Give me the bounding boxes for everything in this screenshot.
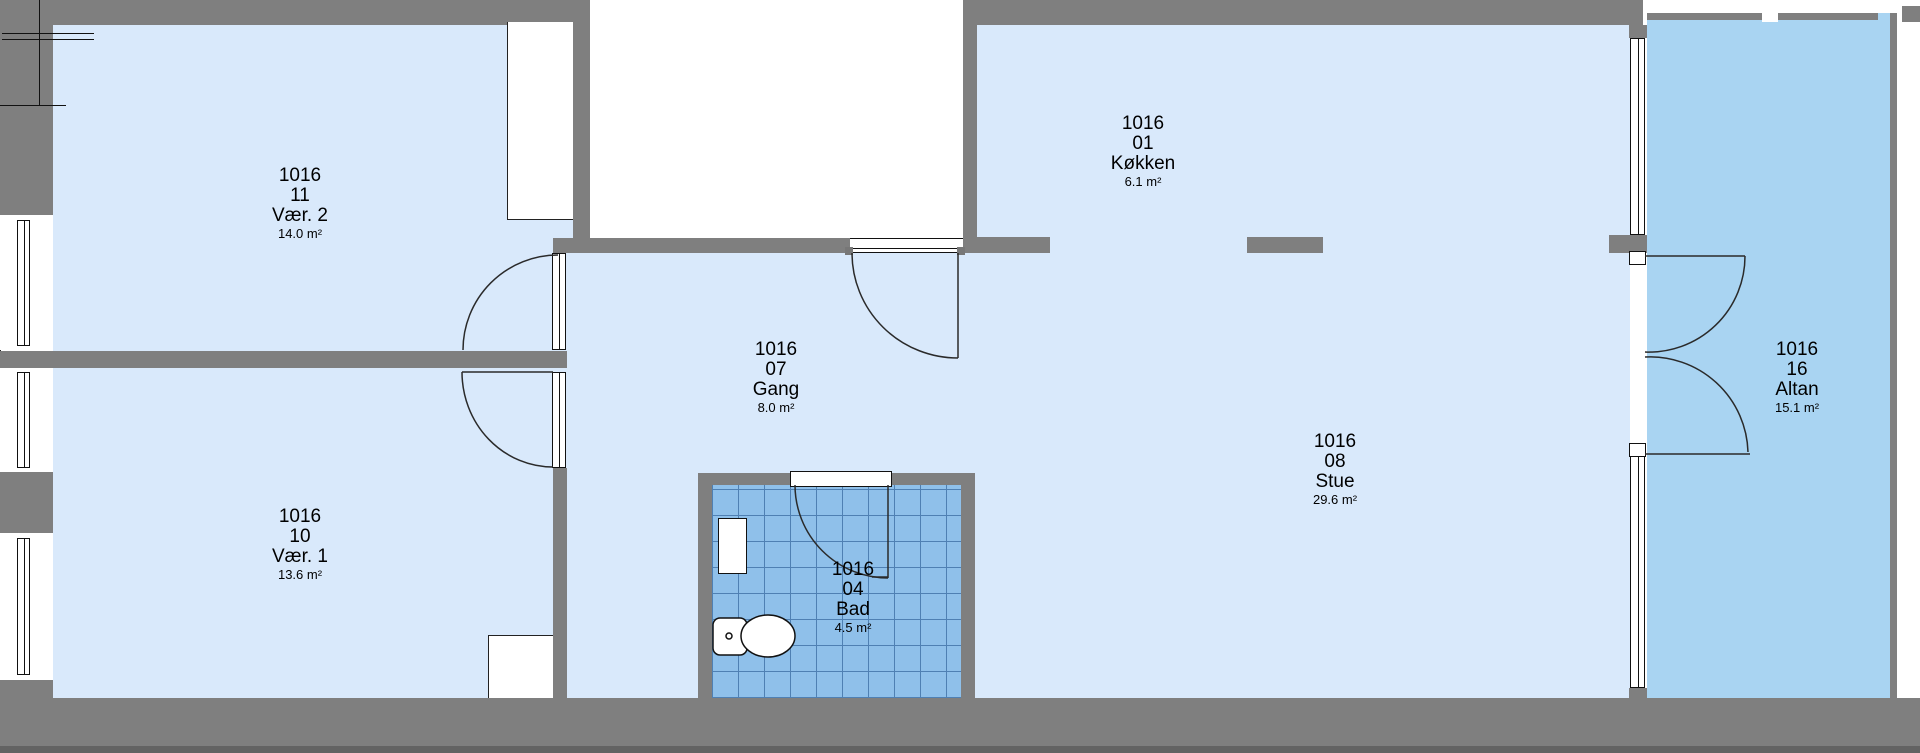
room-area: 15.1 m² <box>1775 400 1819 416</box>
room-area: 8.0 m² <box>753 400 799 416</box>
room-area: 13.6 m² <box>272 567 328 583</box>
room-label-bad: 1016 04 Bad 4.5 m² <box>832 560 874 636</box>
room-id: 1016 <box>272 166 328 186</box>
wall-stue-right-top-stub <box>1629 25 1647 38</box>
balcony-parapet-right <box>1890 13 1897 698</box>
closet-bedroom1 <box>488 635 553 698</box>
room-id: 1016 <box>1775 340 1819 360</box>
room-label-altan: 1016 16 Altan 15.1 m² <box>1775 340 1819 416</box>
room-number: 01 <box>1111 134 1175 154</box>
room-name: Vær. 2 <box>272 206 328 226</box>
room-name: Altan <box>1775 380 1819 400</box>
room-area: 4.5 m² <box>832 620 874 636</box>
floor-balcony-altan <box>1647 13 1896 698</box>
wall-bottom-band <box>0 698 1920 748</box>
window-stue-lower <box>1630 455 1645 688</box>
wall-kitchen-left <box>963 0 977 237</box>
room-id: 1016 <box>272 507 328 527</box>
wall-bedroom1-right <box>553 468 567 698</box>
room-label-gang: 1016 07 Gang 8.0 m² <box>753 340 799 416</box>
wall-bath-top-left <box>698 473 792 485</box>
bathroom-sink <box>718 518 747 574</box>
room-area: 6.1 m² <box>1111 174 1175 190</box>
wall-kitchen-left-cap <box>963 237 1050 253</box>
room-number: 11 <box>272 186 328 206</box>
balcony-parapet-top-notch <box>1762 11 1778 22</box>
balcony-door-jamb-top <box>1629 251 1646 265</box>
room-label-koekken: 1016 01 Køkken 6.1 m² <box>1111 114 1175 190</box>
room-number: 10 <box>272 527 328 547</box>
wall-bath-left <box>698 473 712 698</box>
room-name: Bad <box>832 600 874 620</box>
room-number: 08 <box>1313 452 1357 472</box>
wall-divider-bedrooms <box>0 351 567 368</box>
balcony-door-jamb-bottom <box>1629 443 1646 457</box>
room-label-vaer1: 1016 10 Vær. 1 13.6 m² <box>272 507 328 583</box>
door-frame-bedroom1 <box>552 372 566 468</box>
entry-door-threshold <box>850 238 963 253</box>
wall-bath-right <box>961 473 975 698</box>
closet-bedroom2 <box>507 22 573 220</box>
room-id: 1016 <box>1313 432 1357 452</box>
room-name: Stue <box>1313 472 1357 492</box>
wall-top-right <box>963 0 1643 25</box>
entry-door-jamb-left <box>845 247 853 255</box>
room-area: 14.0 m² <box>272 226 328 242</box>
floor-plan: 1016 11 Vær. 2 14.0 m² 1016 10 Vær. 1 13… <box>0 0 1920 753</box>
void-common-area <box>590 0 963 253</box>
window-stue-upper <box>1630 38 1645 235</box>
door-frame-bedroom2 <box>552 253 566 350</box>
entry-door-jamb-right <box>957 247 965 255</box>
room-name: Vær. 1 <box>272 547 328 567</box>
room-id: 1016 <box>1111 114 1175 134</box>
room-id: 1016 <box>832 560 874 580</box>
room-number: 04 <box>832 580 874 600</box>
window-bedroom1-upper <box>17 372 30 468</box>
neighbor-wall-corner <box>1902 6 1920 22</box>
room-name: Gang <box>753 380 799 400</box>
wall-left-mid-pier <box>0 472 53 533</box>
wall-bedroom2-right <box>573 0 590 240</box>
door-frame-bathroom <box>790 471 892 487</box>
room-area: 29.6 m² <box>1313 492 1357 508</box>
wall-kitchen-right-cap <box>1247 237 1323 253</box>
room-label-vaer2: 1016 11 Vær. 2 14.0 m² <box>272 166 328 242</box>
room-name: Køkken <box>1111 154 1175 174</box>
window-bedroom1-lower <box>17 538 30 675</box>
room-number: 16 <box>1775 360 1819 380</box>
room-id: 1016 <box>753 340 799 360</box>
wall-top-left <box>0 0 590 25</box>
room-number: 07 <box>753 360 799 380</box>
wall-entry-band <box>553 238 850 253</box>
room-label-stue: 1016 08 Stue 29.6 m² <box>1313 432 1357 508</box>
window-bedroom2 <box>17 220 30 346</box>
wall-bottom-edge <box>0 746 1920 753</box>
